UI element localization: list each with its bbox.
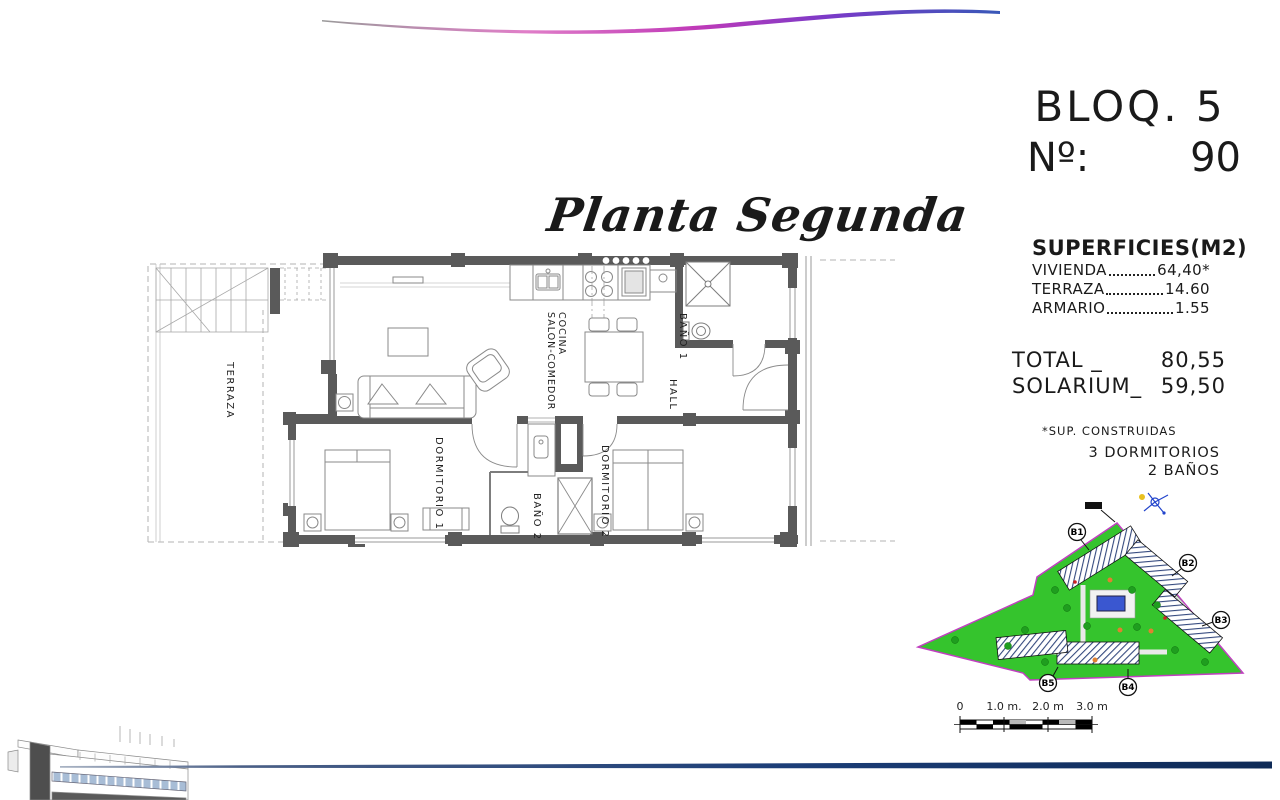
unit-number-label: Nº: [1027,135,1089,181]
block-bubble-b3: B3 [1213,612,1230,629]
svg-text:B3: B3 [1214,616,1227,626]
room-label-bano1: BAÑO 1 [677,313,688,361]
totals-panel: TOTAL _ 80,55 SOLARIUM_ 59,50 [1012,348,1226,400]
pool [1097,596,1125,611]
floor-plan [130,250,900,580]
total-label: TOTAL _ [1012,348,1103,372]
surfaces-footnote: *SUP. CONSTRUIDAS [1042,424,1177,438]
bottom-rule [0,758,1280,772]
row-value: 14.60 [1165,280,1210,298]
room-label-bano2: BAÑO 2 [531,493,542,541]
bedrooms-count: 3 DORMITORIOS [1000,445,1220,461]
svg-text:B2: B2 [1181,559,1194,569]
row-label: ARMARIO [1032,299,1105,317]
room-label-dormitorio1: DORMITORIO 1 [433,437,444,530]
block-label: BLOQ. 5 [1005,82,1255,131]
program-panel: 3 DORMITORIOS 2 BAÑOS [1000,443,1220,479]
row-value: 1.55 [1175,299,1210,317]
bathrooms-count: 2 BAÑOS [1000,463,1220,479]
svg-text:B4: B4 [1121,683,1134,693]
salon-line1: SALON-COMEDOR [545,312,556,410]
scale-tick-1: 1.0 m. [986,700,1021,713]
room-label-hall: HALL [667,379,678,411]
scale-bar-graphic [952,716,1112,736]
svg-text:B1: B1 [1070,528,1083,538]
site-plan: B1 B2 B3 B4 B5 [905,490,1250,720]
surface-row-vivienda: VIVIENDA 64,40* [1032,261,1210,279]
bathroom1-fixtures [683,262,730,340]
surface-row-armario: ARMARIO 1.55 [1032,299,1210,317]
room-label-salon-cocina: SALON-COMEDOR COCINA [545,312,567,410]
salon-line2: COCINA [556,312,567,410]
entrance-flag [1085,502,1115,522]
scale-tick-3: 3.0 m [1076,700,1108,713]
unit-number-value: 90 [1190,135,1241,181]
scale-bar: 0 1.0 m. 2.0 m 3.0 m [952,700,1112,742]
row-value: 64,40* [1157,261,1210,279]
compass-icon [1139,493,1168,515]
row-label: TERRAZA [1032,280,1104,298]
stair-wall [270,268,280,314]
block-header: BLOQ. 5 Nº: 90 [1005,82,1255,181]
bedroom1-furniture [304,450,469,531]
room-label-dormitorio2: DORMITORIO 2 [599,445,610,538]
terrace-boundary [148,264,330,542]
scale-tick-2: 2.0 m [1032,700,1064,713]
block-bubble-b2: B2 [1180,555,1197,572]
closet [528,418,555,476]
side-table [336,394,353,411]
dining-table [585,318,643,396]
shaft-slot [561,424,577,464]
plan-sheet: Planta Segunda BLOQ. 5 Nº: 90 SUPERFICIE… [0,0,1280,800]
building-sketch [0,712,235,800]
svg-text:B5: B5 [1041,679,1054,689]
dotted-leader [1109,273,1155,276]
solarium-row: SOLARIUM_ 59,50 [1012,374,1226,398]
decorative-wave [300,0,1020,40]
surface-row-terraza: TERRAZA 14.60 [1032,280,1210,298]
solarium-value: 59,50 [1161,374,1226,398]
sofa [358,376,476,418]
total-row: TOTAL _ 80,55 [1012,348,1226,372]
surfaces-heading: SUPERFICIES(M2) [1032,236,1210,260]
block-bubble-b1: B1 [1069,524,1086,541]
stairs [156,268,328,332]
block-bubble-b5: B5 [1040,675,1057,692]
solarium-label: SOLARIUM_ [1012,374,1142,398]
scale-tick-0: 0 [957,700,964,713]
surfaces-panel: SUPERFICIES(M2) VIVIENDA 64,40* TERRAZA … [1032,236,1210,317]
coffee-table [388,328,428,356]
row-label: VIVIENDA [1032,261,1107,279]
dotted-leader [1107,311,1173,314]
bedroom2-furniture [594,450,703,531]
room-label-terraza: TERRAZA [224,362,235,419]
page-title: Planta Segunda [544,188,971,242]
dotted-leader [1106,292,1163,295]
total-value: 80,55 [1161,348,1226,372]
block-bubble-b4: B4 [1120,679,1137,696]
party-line [806,256,895,546]
